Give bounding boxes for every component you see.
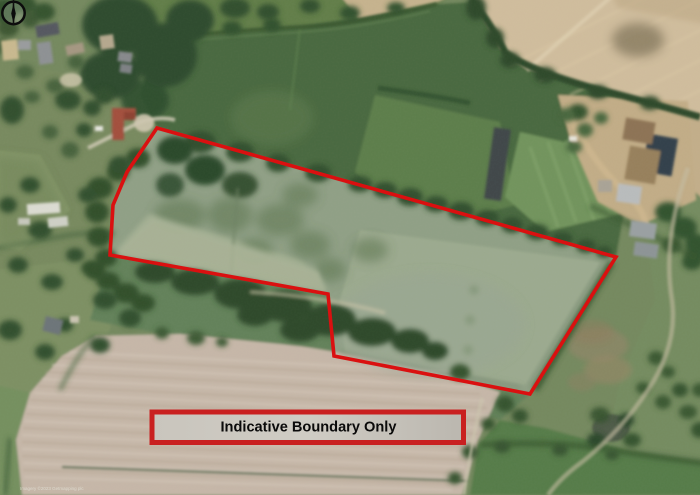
svg-text:Indicative Boundary Only: Indicative Boundary Only (221, 420, 398, 436)
svg-text:Imagery ©2023 Getmapping plc: Imagery ©2023 Getmapping plc (20, 485, 84, 491)
